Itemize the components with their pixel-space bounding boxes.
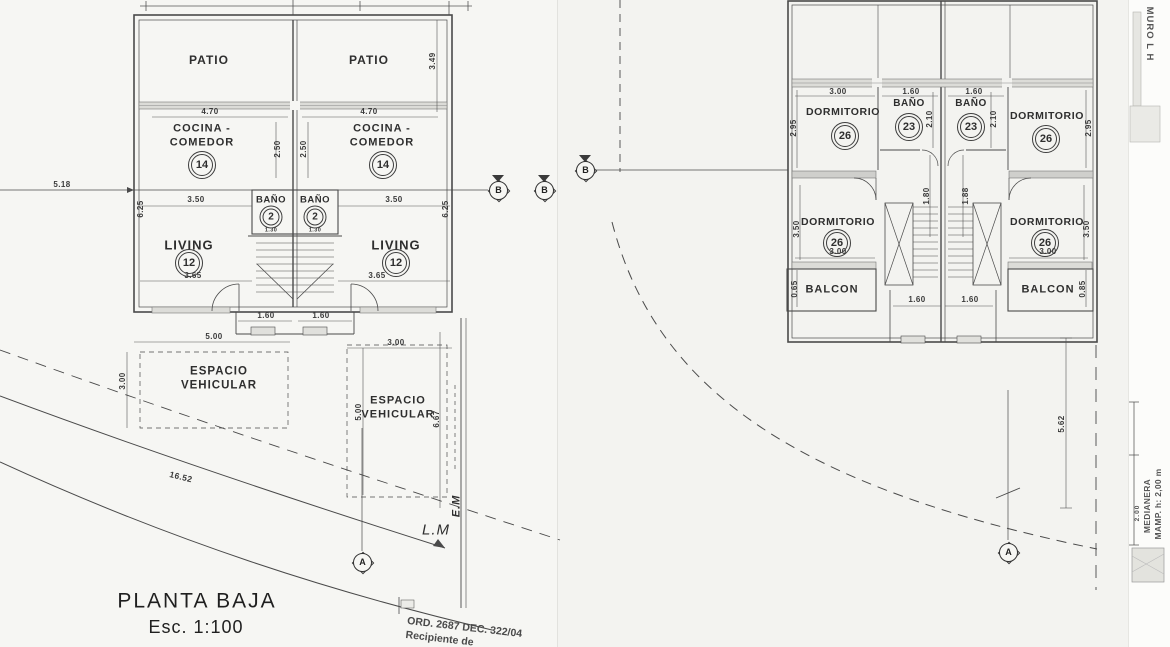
room-label-dormitorio-bottom-right: DORMITORIO [1010, 217, 1084, 228]
room-label-patio-left: PATIO [189, 54, 229, 66]
room-label-espacio-left-line2: VEHICULAR [181, 380, 257, 392]
dim-label: 5.18 [53, 181, 70, 189]
dim-label: 5.00 [205, 333, 222, 341]
dim-label: 1.60 [312, 312, 329, 320]
room-label-cocina-left-line1: COCINA - [173, 124, 231, 135]
room-number-cocina-right: 14 [372, 154, 394, 176]
section-marker-b2: B [533, 179, 555, 201]
marker-letter: A [999, 543, 1018, 562]
room-label-dormitorio-top-right: DORMITORIO [1010, 111, 1084, 122]
dim-label: 0.65 [791, 280, 799, 297]
section-marker-b1: B [487, 179, 509, 201]
dim-label: 3.50 [385, 196, 402, 204]
room-label-cocina-left-line2: COMEDOR [170, 138, 234, 149]
dim-label: 4.70 [201, 108, 218, 116]
dim-label: 5.62 [1058, 415, 1066, 432]
dim-label: 2.95 [790, 119, 798, 136]
dim-label: 6.25 [137, 200, 145, 217]
room-label-balcon-left: BALCON [805, 285, 858, 296]
room-label-living-right: LIVING [371, 239, 420, 252]
dim-label: 2.50 [300, 140, 308, 157]
section-marker-a-left: A [351, 551, 373, 573]
eje-medianero-label: E.M [452, 495, 463, 518]
dim-label: 1.60 [908, 296, 925, 304]
dim-label: 1.60 [965, 88, 982, 96]
dim-label: 1.30 [309, 228, 321, 234]
room-label-bano-right: BAÑO [300, 195, 330, 205]
dim-label: 3.00 [119, 372, 127, 389]
dim-label: 3.65 [368, 272, 385, 280]
muro-label: MURO L H [1144, 7, 1154, 62]
dim-label: 6.25 [442, 200, 450, 217]
medianera-dim-label: 2.00 [1135, 505, 1142, 522]
dim-label: 4.70 [360, 108, 377, 116]
medianera-label-line1: MEDIANERA [1143, 479, 1152, 533]
dim-label: 6.67 [433, 410, 441, 427]
plan-scale: Esc. 1:100 [148, 618, 243, 636]
room-number-cocina-left: 14 [191, 154, 213, 176]
dim-label: 1.60 [961, 296, 978, 304]
room-number-living-right: 12 [385, 252, 407, 274]
dim-label: 5.00 [355, 403, 363, 420]
room-number-dormitorio-top-right: 26 [1035, 128, 1057, 150]
room-number-bano23-left: 23 [898, 116, 920, 138]
dim-label: 2.10 [990, 110, 998, 127]
dim-label: 3.50 [793, 220, 801, 237]
room-label-cocina-right-line1: COCINA - [353, 124, 411, 135]
dim-label: 3.50 [187, 196, 204, 204]
room-label-bano23-left: BAÑO [893, 99, 924, 109]
marker-letter: B [576, 161, 595, 180]
dim-label: 3.49 [429, 52, 437, 69]
dim-label: 3.00 [1039, 248, 1056, 256]
dim-label: 2.10 [926, 110, 934, 127]
room-number-bano-right: 2 [307, 209, 324, 226]
room-number-bano23-right: 23 [960, 116, 982, 138]
room-label-espacio-right-line2: VEHICULAR [361, 410, 434, 421]
room-label-patio-right: PATIO [349, 54, 389, 66]
dim-label: 1.60 [257, 312, 274, 320]
dim-label: 1.80 [923, 187, 931, 204]
marker-letter: A [353, 553, 372, 572]
dim-label: 3.50 [1083, 220, 1091, 237]
dim-label: 3.00 [829, 88, 846, 96]
room-label-balcon-right: BALCON [1021, 285, 1074, 296]
scanned-floor-plan: PATIO PATIO COCINA - COMEDOR 14 COCINA -… [0, 0, 1170, 647]
medianera-label-line2: MAMP. h: 2,00 m [1154, 469, 1163, 540]
room-label-bano-left: BAÑO [256, 195, 286, 205]
linea-municipal-label: L.M [422, 523, 450, 538]
room-number-bano-left: 2 [263, 209, 280, 226]
marker-letter: B [535, 181, 554, 200]
room-label-dormitorio-top-left: DORMITORIO [806, 107, 880, 118]
dim-label: 2.50 [274, 140, 282, 157]
dim-label: 2.95 [1085, 119, 1093, 136]
dim-label: 3.00 [387, 339, 404, 347]
room-label-bano23-right: BAÑO [955, 99, 986, 109]
room-label-living-left: LIVING [164, 239, 213, 252]
section-marker-b3: B [574, 159, 596, 181]
dim-label: 3.00 [829, 248, 846, 256]
dim-label: 1.60 [902, 88, 919, 96]
room-label-cocina-right-line2: COMEDOR [350, 138, 414, 149]
plan-linework [0, 0, 1170, 647]
dim-label: 1.88 [962, 187, 970, 204]
section-marker-a-right: A [997, 541, 1019, 563]
room-label-dormitorio-bottom-left: DORMITORIO [801, 217, 875, 228]
room-label-espacio-left-line1: ESPACIO [190, 366, 248, 378]
dim-label: 0.85 [1079, 280, 1087, 297]
marker-letter: B [489, 181, 508, 200]
room-number-dormitorio-top-left: 26 [834, 125, 856, 147]
room-label-espacio-right-line1: ESPACIO [370, 396, 426, 407]
dim-label: 3.65 [184, 272, 201, 280]
dim-label: 1.30 [265, 228, 277, 234]
plan-title: PLANTA BAJA [117, 591, 276, 612]
